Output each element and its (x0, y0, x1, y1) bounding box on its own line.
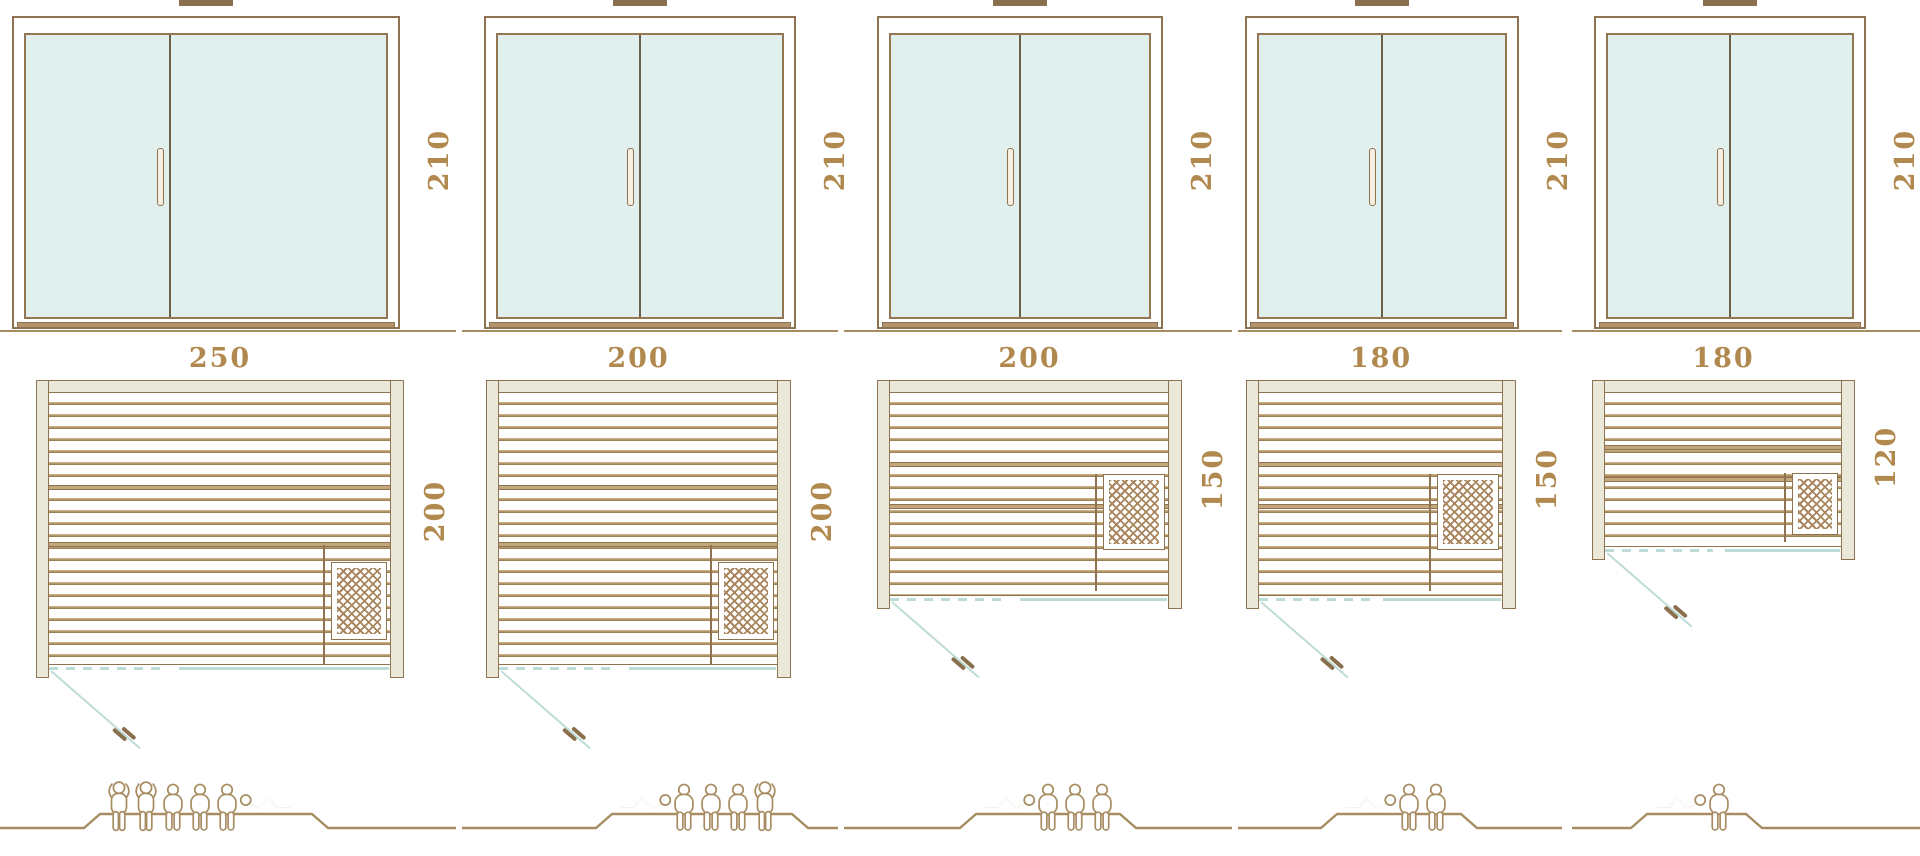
door-sill (882, 322, 1158, 328)
front-glass-wall (629, 667, 776, 670)
door-handle-icon (1369, 148, 1376, 206)
capacity-figures (844, 752, 1232, 856)
person-sitting-icon (1710, 784, 1728, 830)
door-handle-plan-icon (1664, 602, 1687, 624)
door-frame (877, 16, 1163, 329)
person-sitting-icon (1427, 784, 1445, 830)
person-sitting-icon (675, 784, 693, 830)
plan-depth-label: 120 (1871, 412, 1903, 502)
plan-benches (48, 392, 391, 665)
door-divider (639, 35, 642, 317)
person-sitting-icon (1093, 784, 1111, 830)
vent-cap-icon (1355, 0, 1409, 6)
floor-plan: 150 (877, 380, 1182, 601)
plan-wall-right (1841, 380, 1855, 560)
door-swing-line (500, 670, 590, 749)
ground-line (0, 330, 456, 332)
door-opening-dashed (1259, 598, 1371, 601)
door-handle-plan-icon (113, 724, 136, 746)
ground-line (844, 330, 1232, 332)
door-opening-dashed (49, 667, 167, 670)
plan-benches (889, 392, 1169, 596)
door-opening-dashed (1605, 549, 1713, 552)
plan-wall-right (390, 380, 404, 678)
plan-benches (1604, 392, 1842, 547)
door-height-label: 210 (1890, 115, 1920, 205)
person-sitting-icon (729, 784, 747, 830)
vent-cap-icon (179, 0, 233, 6)
person-lying-icon (241, 795, 289, 808)
bench-edge (710, 545, 712, 664)
front-glass-wall (1725, 549, 1840, 552)
heater (1103, 474, 1165, 550)
door-divider (1019, 35, 1022, 317)
door-opening-dashed (890, 598, 1008, 601)
door-sill (1250, 322, 1514, 328)
person-standing-icon (755, 782, 775, 830)
plan-wall-right (1168, 380, 1182, 609)
heater (1437, 474, 1499, 550)
door-sill (17, 322, 395, 328)
door-handle-plan-icon (951, 653, 974, 675)
bench-edge (1095, 474, 1097, 591)
ground-line (1572, 330, 1920, 332)
door-elevation: 210 (877, 0, 1163, 340)
person-sitting-icon (218, 784, 236, 830)
bench-platform-line (844, 814, 1232, 828)
person-sitting-icon (1066, 784, 1084, 830)
bench-edge (1259, 462, 1502, 467)
vent-cap-icon (613, 0, 667, 6)
door-handle-plan-icon (1320, 653, 1343, 675)
door-handle-plan-icon (563, 724, 586, 746)
glass-panels (889, 33, 1151, 319)
glass-panels (1257, 33, 1507, 319)
sauna-column: 210 180 120 (1594, 0, 1866, 856)
plan-benches (1258, 392, 1503, 596)
door-swing-line (1260, 601, 1348, 678)
heater-grid-icon (724, 568, 768, 634)
capacity-figures (1238, 752, 1562, 856)
person-lying-icon (986, 795, 1034, 808)
door-frame (1245, 16, 1519, 329)
person-sitting-icon (191, 784, 209, 830)
floor-plan: 150 (1246, 380, 1516, 601)
plan-benches (498, 392, 778, 665)
heater-grid-icon (1109, 480, 1159, 544)
door-sill (1599, 322, 1861, 328)
front-glass-wall (1020, 598, 1167, 601)
bench-edge (323, 545, 325, 664)
door-divider (169, 35, 172, 317)
person-standing-icon (136, 782, 156, 830)
door-height-label: 210 (424, 115, 456, 205)
bench-edge (1784, 473, 1786, 542)
door-swing-line (891, 601, 979, 678)
person-sitting-icon (1039, 784, 1057, 830)
plan-width-label: 180 (1592, 343, 1855, 375)
sauna-column: 210 200 150 (877, 0, 1163, 856)
plan-depth-label: 150 (1198, 434, 1230, 524)
person-sitting-icon (702, 784, 720, 830)
door-handle-icon (1007, 148, 1014, 206)
door-frame (12, 16, 400, 329)
glass-panels (1606, 33, 1854, 319)
plan-depth-label: 150 (1532, 434, 1564, 524)
capacity-figures (1572, 752, 1920, 856)
door-handle-icon (627, 148, 634, 206)
door-frame (484, 16, 796, 329)
sauna-column: 210 200 200 (484, 0, 796, 856)
sauna-column: 210 250 200 (12, 0, 400, 856)
plan-depth-label: 200 (420, 466, 452, 556)
front-glass-wall (1383, 598, 1501, 601)
door-frame (1594, 16, 1866, 329)
person-sitting-icon (1400, 784, 1418, 830)
bench-edge (499, 485, 777, 490)
door-divider (1381, 35, 1384, 317)
person-lying-icon (1347, 795, 1395, 808)
ground-line (462, 330, 838, 332)
sauna-column: 210 180 150 (1245, 0, 1519, 856)
sauna-size-diagram: 210 250 200 (0, 0, 1920, 856)
person-lying-icon (622, 795, 670, 808)
heater-grid-icon (1443, 480, 1493, 544)
door-height-label: 210 (1187, 115, 1219, 205)
bench-edge (49, 542, 390, 547)
door-swing-line (1606, 552, 1692, 627)
door-handle-icon (1717, 148, 1724, 206)
door-handle-icon (157, 148, 164, 206)
door-height-label: 210 (1543, 115, 1575, 205)
door-sill (489, 322, 791, 328)
door-divider (1729, 35, 1732, 317)
plan-wall-right (777, 380, 791, 678)
door-elevation: 210 (484, 0, 796, 340)
door-elevation: 210 (1594, 0, 1866, 340)
capacity-figures (462, 752, 838, 856)
ground-line (1238, 330, 1562, 332)
floor-plan: 120 (1592, 380, 1855, 552)
bench-platform-line (1572, 814, 1920, 828)
bench-edge (499, 542, 777, 547)
bench-platform-line (1238, 814, 1562, 828)
floor-plan: 200 (36, 380, 404, 670)
person-standing-icon (109, 782, 129, 830)
plan-width-label: 200 (877, 343, 1182, 375)
heater (718, 562, 774, 640)
door-elevation: 210 (12, 0, 400, 340)
floor-plan: 200 (486, 380, 791, 670)
heater-grid-icon (337, 568, 381, 634)
vent-cap-icon (993, 0, 1047, 6)
heater (1792, 473, 1838, 535)
heater (331, 562, 387, 640)
bench-edge (890, 462, 1168, 467)
front-glass-wall (179, 667, 389, 670)
glass-panels (24, 33, 388, 319)
bench-edge (1605, 445, 1841, 450)
bench-platform-line (462, 814, 838, 828)
door-elevation: 210 (1245, 0, 1519, 340)
plan-depth-label: 200 (807, 466, 839, 556)
person-lying-icon (1657, 795, 1705, 808)
door-opening-dashed (499, 667, 617, 670)
plan-width-label: 180 (1246, 343, 1516, 375)
plan-width-label: 200 (486, 343, 791, 375)
person-sitting-icon (164, 784, 182, 830)
plan-width-label: 250 (36, 343, 404, 375)
bench-edge (1429, 474, 1431, 591)
heater-grid-icon (1798, 479, 1832, 529)
door-swing-line (50, 670, 140, 749)
door-height-label: 210 (820, 115, 852, 205)
bench-edge (49, 485, 390, 490)
plan-wall-right (1502, 380, 1516, 609)
vent-cap-icon (1703, 0, 1757, 6)
glass-panels (496, 33, 784, 319)
capacity-figures (0, 752, 456, 856)
